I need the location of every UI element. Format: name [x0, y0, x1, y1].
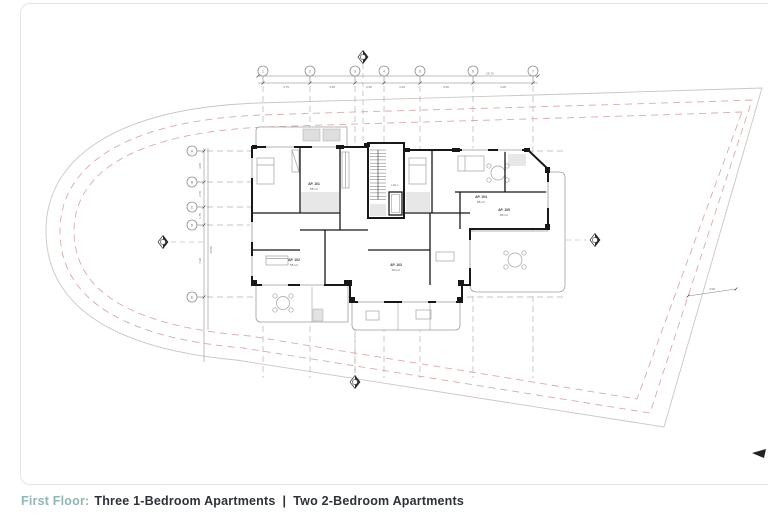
planter: [323, 129, 340, 141]
dim-left-overall: 14.50: [209, 246, 213, 254]
core-room-label: HALL: [391, 183, 399, 187]
dim-top-seg: 3.40: [399, 85, 405, 89]
apartment-area: 55 m²: [310, 187, 318, 191]
apartment-area: 60 m²: [392, 268, 400, 272]
svg-text:1: 1: [262, 69, 264, 73]
svg-text:6: 6: [472, 69, 474, 73]
dim-right: 3.00: [709, 287, 715, 291]
caption-text-2: Two 2-Bedroom Apartments: [293, 494, 464, 508]
dim-left-seg: 2.70: [198, 191, 202, 197]
dim-top-seg: 4.05: [500, 85, 506, 89]
svg-text:4: 4: [383, 69, 385, 73]
apartment-label: AP. 103: [390, 263, 402, 267]
svg-text:2: 2: [309, 69, 311, 73]
page: 25.70 4.75 4.35 2.05 3.40 4.50 4.05 3.05…: [0, 0, 768, 529]
caption: First Floor:Three 1-Bedroom Apartments|T…: [21, 494, 464, 508]
section-marker-top: [358, 51, 368, 142]
svg-text:3: 3: [354, 69, 356, 73]
apartment-label: AP. 102: [288, 258, 300, 262]
apartment-area: 55 m²: [290, 263, 298, 267]
dim-left-seg: 7.20: [198, 258, 202, 264]
dim-top-overall: 25.70: [486, 72, 494, 76]
caption-separator: |: [283, 494, 287, 508]
floor-plan-drawing: 25.70 4.75 4.35 2.05 3.40 4.50 4.05 3.05…: [0, 0, 768, 529]
elevator: [389, 192, 402, 215]
balcony-bottom-center: [352, 302, 460, 330]
apartment-label: AP. 105: [498, 208, 510, 212]
caption-floor-label: First Floor:: [21, 494, 89, 508]
arrow-marker: [752, 449, 766, 458]
dim-top-seg: 2.05: [366, 85, 372, 89]
caption-text-1: Three 1-Bedroom Apartments: [94, 494, 275, 508]
apartment-area: 85 m²: [477, 200, 485, 204]
svg-text:7: 7: [532, 69, 534, 73]
dim-top-seg: 4.75: [283, 85, 289, 89]
right-dimension: 3.00: [687, 287, 738, 298]
apartment-label: AP. 101: [308, 182, 320, 186]
apartment-area: 83 m²: [500, 213, 508, 217]
svg-text:5: 5: [419, 69, 421, 73]
dim-left-seg: 1.75: [198, 213, 202, 219]
dim-top-seg: 4.50: [443, 85, 449, 89]
planter: [303, 129, 320, 141]
dim-top-seg: 4.35: [329, 85, 335, 89]
section-marker-left: [158, 236, 206, 249]
dim-left-seg: 3.05: [198, 163, 202, 169]
apartment-label: AP. 104: [475, 195, 487, 199]
balcony-bottom-left: [256, 284, 348, 322]
planter: [313, 309, 323, 321]
section-marker-right: [566, 234, 600, 247]
top-dimension-chain: 25.70 4.75 4.35 2.05 3.40 4.50 4.05: [257, 72, 540, 89]
